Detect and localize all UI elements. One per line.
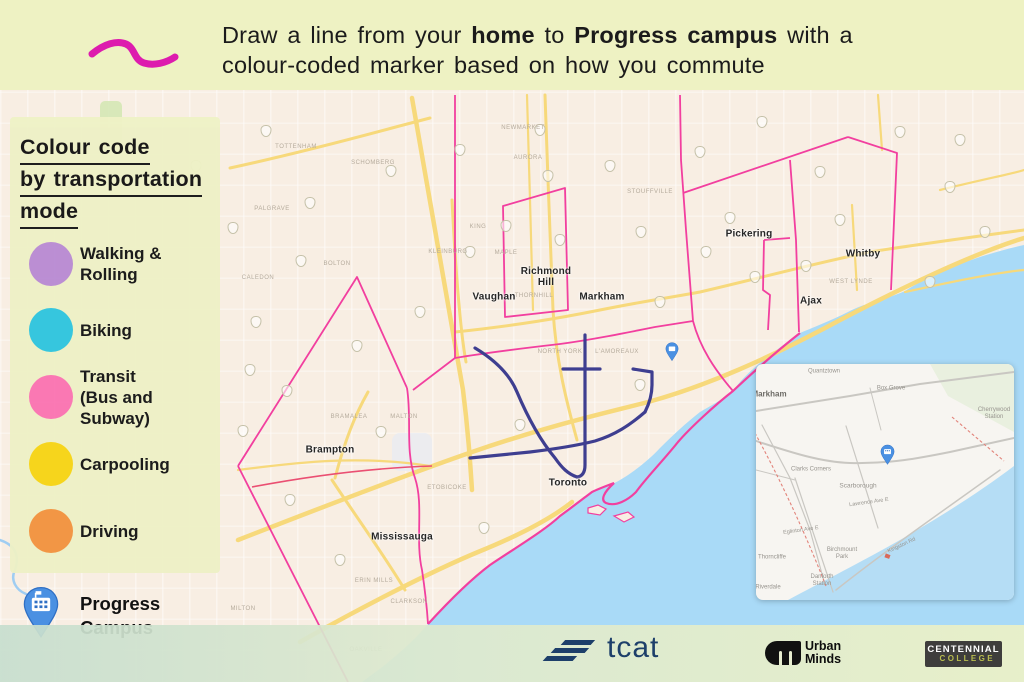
title-line-2: colour-coded marker based on how you com…	[222, 50, 922, 80]
minor-place-label: L'AMOREAUX	[595, 349, 639, 355]
city-label-whitby: Whitby	[846, 249, 881, 260]
poster-title: Draw a line from your home to Progress c…	[222, 20, 922, 80]
minor-place-label: NEWMARKET	[501, 125, 545, 131]
inset-place-label: Riverdale	[756, 585, 781, 592]
legend-title-line: by transportation	[20, 165, 202, 197]
minor-place-label: BRAMALEA	[331, 414, 368, 420]
minor-place-label: ERIN MILLS	[355, 578, 393, 584]
title-segment: home	[471, 22, 534, 48]
minor-place-label: STOUFFVILLE	[627, 189, 673, 195]
minor-place-label: MAPLE	[495, 250, 518, 256]
city-label-toronto: Toronto	[549, 478, 587, 489]
minor-place-label: ETOBICOKE	[427, 485, 466, 491]
legend-item-driving: Driving	[10, 509, 220, 553]
legend-item-label: Driving	[80, 521, 139, 542]
inset-place-label: Scarborough	[839, 483, 876, 490]
urban-minds-wordmark: Urban Minds	[805, 640, 841, 666]
minor-place-label: MALTON	[390, 414, 417, 420]
progress-campus-map-pin-icon	[665, 342, 679, 362]
inset-place-label: Clarks Corners	[791, 467, 831, 474]
minor-place-label: CALEDON	[242, 275, 275, 281]
inset-place-label: Quantztown	[808, 369, 840, 376]
legend-swatch-icon	[29, 509, 73, 553]
legend-item-label: Walking & Rolling	[80, 243, 162, 285]
legend-item-carpooling: Carpooling	[10, 442, 220, 486]
minor-place-label: AURORA	[514, 155, 543, 161]
city-label-richmond: Richmond Hill	[521, 266, 572, 288]
urban-minds-icon	[765, 641, 801, 665]
inset-place-label: Markham	[756, 391, 787, 398]
city-label-pickering: Pickering	[726, 229, 773, 240]
minor-place-label: WEST LYNDE	[829, 279, 872, 285]
inset-place-label: Danforth Station	[810, 574, 833, 588]
legend-swatch-icon	[29, 442, 73, 486]
minor-place-label: KING	[470, 224, 487, 230]
campus-inset-map: MarkhamQuantztownBox GroveCherrywood Sta…	[756, 364, 1014, 600]
city-label-mississauga: Mississauga	[371, 532, 433, 543]
footer-band: tcat Urban Minds CENTENNIAL COLLEGE	[0, 625, 1024, 682]
minor-place-label: MILTON	[230, 606, 255, 612]
title-segment: Draw a line from your	[222, 22, 471, 48]
centennial-college-wordmark: COLLEGE	[925, 654, 1002, 663]
tcat-wordmark: tcat	[607, 631, 659, 665]
legend-title-line: Colour code	[20, 133, 150, 165]
inset-campus-pin-icon	[880, 444, 895, 466]
title-segment: to	[535, 22, 574, 48]
title-segment: with a	[777, 22, 852, 48]
header-banner: Draw a line from your home to Progress c…	[0, 0, 1024, 90]
legend-panel: Colour codeby transportationmode Walking…	[10, 117, 220, 573]
marker-squiggle-icon	[84, 18, 184, 72]
title-line-1: Draw a line from your home to Progress c…	[222, 20, 922, 50]
legend-item-biking: Biking	[10, 308, 220, 352]
minor-place-label: CLARKSON	[390, 599, 427, 605]
city-label-brampton: Brampton	[306, 445, 355, 456]
legend-title: Colour codeby transportationmode	[20, 133, 202, 229]
title-segment: Progress campus	[574, 22, 777, 48]
urban-minds-logo: Urban Minds	[765, 640, 841, 666]
legend-swatch-icon	[29, 308, 73, 352]
city-label-ajax: Ajax	[800, 296, 822, 307]
city-label-vaughan: Vaughan	[472, 292, 515, 303]
tcat-logo: tcat	[545, 637, 659, 665]
inset-place-label: Birchmount Park	[827, 547, 857, 561]
centennial-college-logo: CENTENNIAL COLLEGE	[925, 641, 1002, 667]
legend-swatch-icon	[29, 242, 73, 286]
legend-item-walking-: Walking & Rolling	[10, 242, 220, 286]
minor-place-label: BOLTON	[323, 261, 350, 267]
minor-place-label: KLEINBURG	[428, 249, 467, 255]
minor-place-label: THORNHILL	[515, 293, 554, 299]
minor-place-label: SCHOMBERG	[351, 160, 395, 166]
legend-item-label: Carpooling	[80, 454, 170, 475]
tcat-stripes-icon	[545, 637, 597, 665]
inset-place-label: Thorncliffe	[758, 555, 786, 562]
legend-title-line: mode	[20, 197, 78, 229]
inset-place-label: Box Grove	[877, 386, 905, 393]
legend-item-label: Transit (Bus and Subway)	[80, 366, 220, 429]
minor-place-label: NORTH YORK	[538, 349, 583, 355]
city-label-markham: Markham	[579, 292, 624, 303]
legend-swatch-icon	[29, 375, 73, 419]
minor-place-label: PALGRAVE	[254, 206, 289, 212]
inset-graphics	[756, 364, 1014, 600]
inset-place-label: Cherrywood Station	[978, 407, 1010, 421]
poster: BramptonMississaugaVaughanRichmond HillM…	[0, 0, 1024, 682]
legend-item-transit: Transit (Bus and Subway)	[10, 375, 220, 419]
legend-item-label: Biking	[80, 320, 132, 341]
minor-place-label: TOTTENHAM	[275, 144, 317, 150]
